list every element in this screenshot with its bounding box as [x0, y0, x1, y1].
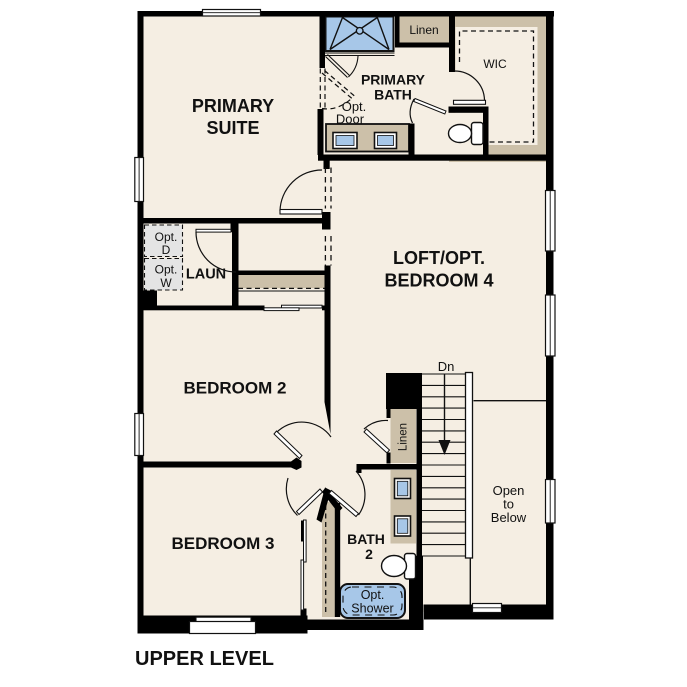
- svg-text:BEDROOM 4: BEDROOM 4: [384, 271, 493, 291]
- svg-text:Dn: Dn: [438, 359, 455, 374]
- svg-text:BATH: BATH: [374, 87, 412, 103]
- svg-text:BEDROOM 2: BEDROOM 2: [184, 379, 287, 398]
- svg-text:LOFT/OPT.: LOFT/OPT.: [393, 248, 485, 268]
- svg-text:Linen: Linen: [398, 423, 410, 451]
- svg-text:LAUN: LAUN: [186, 267, 226, 283]
- svg-text:Opt.: Opt.: [361, 588, 385, 602]
- svg-text:D: D: [162, 243, 171, 257]
- svg-text:BEDROOM 3: BEDROOM 3: [172, 534, 275, 553]
- svg-text:BATH: BATH: [347, 531, 385, 547]
- svg-text:WIC: WIC: [483, 57, 507, 71]
- svg-text:W: W: [160, 276, 172, 290]
- svg-text:PRIMARY: PRIMARY: [361, 72, 426, 88]
- svg-text:Opt.: Opt.: [155, 230, 178, 244]
- svg-text:Linen: Linen: [409, 23, 438, 37]
- svg-text:Opt.: Opt.: [155, 263, 178, 277]
- svg-text:Below: Below: [491, 510, 527, 525]
- svg-text:Door: Door: [336, 112, 365, 127]
- svg-text:SUITE: SUITE: [206, 118, 259, 138]
- svg-text:Shower: Shower: [351, 602, 393, 616]
- svg-text:UPPER LEVEL: UPPER LEVEL: [135, 648, 274, 670]
- svg-text:PRIMARY: PRIMARY: [192, 96, 274, 116]
- svg-text:2: 2: [365, 546, 373, 562]
